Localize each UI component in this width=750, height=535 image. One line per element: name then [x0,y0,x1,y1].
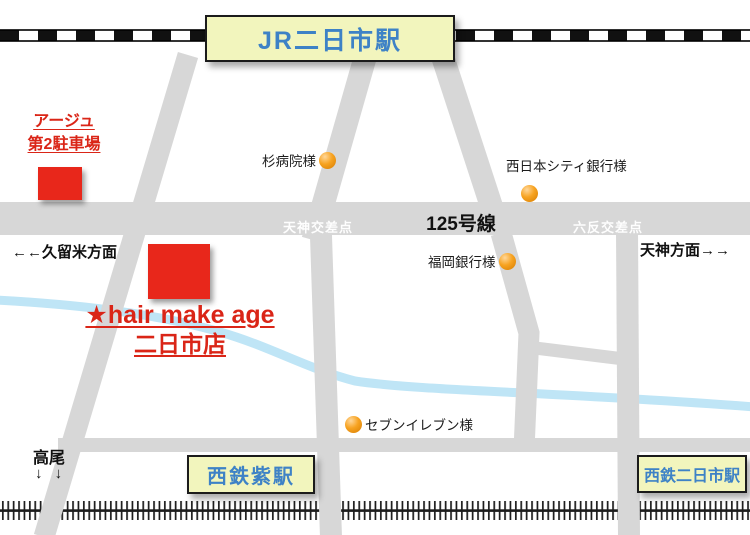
murasaki-station-box: 西鉄紫駅 [187,455,315,494]
parking-label-line1: アージュ [8,110,120,133]
citybank-label: 西日本シティ銀行様 [506,155,627,175]
direction-kurume: ←←久留米方面 [12,241,117,262]
salon-label-line1: ★hair make age [55,301,305,330]
tenjin-crossing-label: 天神交差点 [266,217,370,236]
seveneleven-label: セブンイレブン様 [365,414,473,434]
jr-futsukaichi-station-box: JR二日市駅 [205,15,455,62]
route-125-label: 125号線 [410,209,512,236]
hospital-marker-icon [319,152,336,169]
access-map: JR二日市駅 アージュ 第2駐車場 ★hair make age 二日市店 杉病… [0,0,750,535]
salon-label-line2: 二日市店 [55,330,305,359]
nishitetsu-futsukaichi-station-box: 西鉄二日市駅 [637,455,747,493]
rokutan-crossing-label: 六反交差点 [556,217,660,236]
salon-label: ★hair make age 二日市店 [55,301,305,359]
hospital-landmark: 杉病院様 [262,150,336,170]
murasaki-station-label: 西鉄紫駅 [207,460,295,489]
nishitetsu-futsukaichi-station-label: 西鉄二日市駅 [644,462,740,486]
fukuokabank-label: 福岡銀行様 [428,251,496,271]
seveneleven-landmark: セブンイレブン様 [345,414,473,434]
hospital-label: 杉病院様 [262,150,316,170]
parking-building-marker [38,167,82,200]
seveneleven-marker-icon [345,416,362,433]
fukuokabank-marker-icon [499,253,516,270]
citybank-marker-icon [521,185,538,202]
jr-station-label: JR二日市駅 [258,21,402,57]
direction-tenjin: 天神方面→→ [640,239,730,260]
salon-building-marker [148,244,210,299]
parking-label-line2: 第2駐車場 [8,133,120,156]
parking-label: アージュ 第2駐車場 [8,110,120,156]
takao-down-arrows-icon: ↓ ↓ [35,465,66,482]
fukuokabank-landmark: 福岡銀行様 [428,251,516,271]
citybank-landmark: 西日本シティ銀行様 [506,155,627,175]
